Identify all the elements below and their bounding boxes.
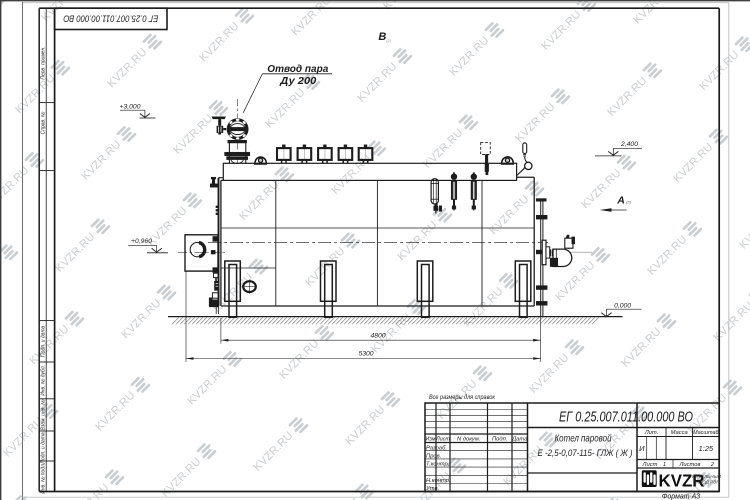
svg-text:Масса: Масса	[671, 430, 689, 436]
svg-text:KVZR.RU: KVZR.RU	[645, 233, 689, 277]
svg-text:KVZR.RU: KVZR.RU	[487, 193, 531, 237]
svg-text:+0,960: +0,960	[131, 238, 152, 245]
svg-text:KVZR.RU: KVZR.RU	[381, 0, 425, 12]
svg-text:Масштаб: Масштаб	[693, 430, 720, 436]
svg-text:KVZR.RU: KVZR.RU	[263, 86, 307, 130]
svg-text:KVZR.RU: KVZR.RU	[711, 300, 750, 344]
svg-text:КОТЕЛЬНЫЙ: КОТЕЛЬНЫЙ	[692, 472, 722, 479]
svg-text:5300: 5300	[358, 351, 373, 358]
svg-text:ЕГ 0.25.007.011.00.000 ВО: ЕГ 0.25.007.011.00.000 ВО	[559, 410, 693, 426]
svg-text:Ду 200: Ду 200	[279, 75, 316, 87]
svg-text:KVZR.RU: KVZR.RU	[13, 72, 57, 116]
svg-text:Е -2,5-0,07-115- ГЛЖ ( Ж ): Е -2,5-0,07-115- ГЛЖ ( Ж )	[538, 448, 633, 458]
svg-text:Т.контр.: Т.контр.	[426, 462, 449, 468]
svg-text:KVZR.RU: KVZR.RU	[27, 323, 71, 367]
svg-text:KVZR.RU: KVZR.RU	[185, 363, 229, 407]
svg-text:KVZR.RU: KVZR.RU	[53, 231, 97, 275]
svg-text:KVZR.RU: KVZR.RU	[605, 75, 649, 119]
svg-text:KVZR.RU: KVZR.RU	[79, 138, 123, 182]
svg-text:KVZR.RU: KVZR.RU	[251, 430, 295, 474]
svg-text:KVZR.RU: KVZR.RU	[119, 297, 163, 341]
svg-text:Справ. №: Справ. №	[41, 111, 47, 134]
svg-text:А: А	[616, 195, 625, 207]
svg-text:KVZR.RU: KVZR.RU	[105, 46, 149, 90]
svg-text:1:25: 1:25	[698, 444, 713, 453]
svg-text:KVZR.RU: KVZR.RU	[461, 285, 505, 329]
svg-text:KVZR.RU: KVZR.RU	[145, 205, 189, 249]
svg-text:KVZR.RU: KVZR.RU	[343, 404, 387, 448]
svg-text:Дата: Дата	[511, 436, 528, 442]
svg-text:(2): (2)	[386, 38, 392, 43]
svg-text:Взам. инв. №: Взам. инв. №	[41, 399, 47, 431]
svg-text:KVZR.RU: KVZR.RU	[197, 20, 241, 64]
svg-text:KVZR.RU: KVZR.RU	[355, 60, 399, 104]
svg-text:KVZR.RU: KVZR.RU	[395, 219, 439, 263]
svg-text:KVZR.RU: KVZR.RU	[619, 326, 663, 370]
svg-text:KVZR.RU: KVZR.RU	[93, 389, 137, 433]
svg-text:И: И	[639, 444, 645, 453]
svg-text:KVZR.RU: KVZR.RU	[539, 8, 583, 52]
svg-text:KVZR.RU: KVZR.RU	[409, 470, 453, 500]
svg-text:KVZR.RU: KVZR.RU	[171, 112, 215, 156]
svg-text:Инв. № дубл.: Инв. № дубл.	[41, 365, 47, 396]
svg-text:KVZR.RU: KVZR.RU	[0, 164, 32, 208]
svg-text:1: 1	[663, 462, 666, 468]
svg-text:В: В	[378, 31, 386, 43]
svg-text:KVZR.RU: KVZR.RU	[289, 0, 333, 38]
svg-text:Лист: Лист	[642, 462, 658, 468]
svg-text:Лит.: Лит.	[644, 430, 659, 436]
svg-text:Утв.: Утв.	[425, 486, 439, 492]
svg-text:KVZR.RU: KVZR.RU	[447, 34, 491, 78]
svg-text:N докум.: N докум.	[457, 436, 480, 442]
svg-text:Н.контр.: Н.контр.	[426, 478, 451, 484]
svg-text:Разраб.: Разраб.	[426, 445, 447, 451]
svg-text:KVZR.RU: KVZR.RU	[513, 101, 557, 145]
svg-text:Изм: Изм	[426, 436, 436, 442]
svg-text:Подп.: Подп.	[492, 436, 507, 442]
svg-text:ЕГ 0.25.007.011.00.000 ВО: ЕГ 0.25.007.011.00.000 ВО	[63, 13, 158, 23]
svg-text:2,400: 2,400	[620, 141, 638, 148]
svg-text:KVZR.RU: KVZR.RU	[277, 337, 321, 381]
svg-text:KVZR.RU: KVZR.RU	[159, 456, 203, 500]
svg-text:KVZR.RU: KVZR.RU	[631, 0, 675, 27]
svg-text:Отвод пара: Отвод пара	[267, 63, 328, 75]
svg-text:KVZR.RU: KVZR.RU	[317, 496, 361, 500]
svg-text:Котел паровой: Котел паровой	[555, 434, 612, 445]
svg-text:Пров.: Пров.	[426, 454, 441, 460]
svg-text:+3,000: +3,000	[120, 104, 141, 111]
svg-text:Формат А3: Формат А3	[662, 493, 700, 500]
svg-text:ЗАВОД РЭП: ЗАВОД РЭП	[693, 480, 720, 485]
svg-text:Подп. и дата: Подп. и дата	[41, 325, 47, 357]
svg-text:KVZR.RU: KVZR.RU	[671, 141, 715, 185]
svg-text:4800: 4800	[370, 332, 385, 339]
svg-text:KVZR.RU: KVZR.RU	[737, 207, 750, 251]
svg-text:KVZR.RU: KVZR.RU	[303, 245, 347, 289]
svg-text:KVZR.RU: KVZR.RU	[237, 179, 281, 223]
svg-text:0,000: 0,000	[614, 302, 631, 309]
svg-text:Листов: Листов	[678, 462, 700, 468]
svg-text:Инв. № подл.: Инв. № подл.	[41, 463, 47, 494]
svg-text:Все размеры для справок: Все размеры для справок	[429, 393, 496, 401]
svg-text:2: 2	[710, 462, 715, 468]
svg-text:Подп. и дата: Подп. и дата	[41, 432, 47, 464]
svg-text:Лист: Лист	[435, 436, 450, 442]
svg-text:(2): (2)	[626, 200, 632, 205]
svg-text:Перв. примен.: Перв. примен.	[41, 46, 47, 79]
svg-text:KVZR.RU: KVZR.RU	[421, 127, 465, 171]
